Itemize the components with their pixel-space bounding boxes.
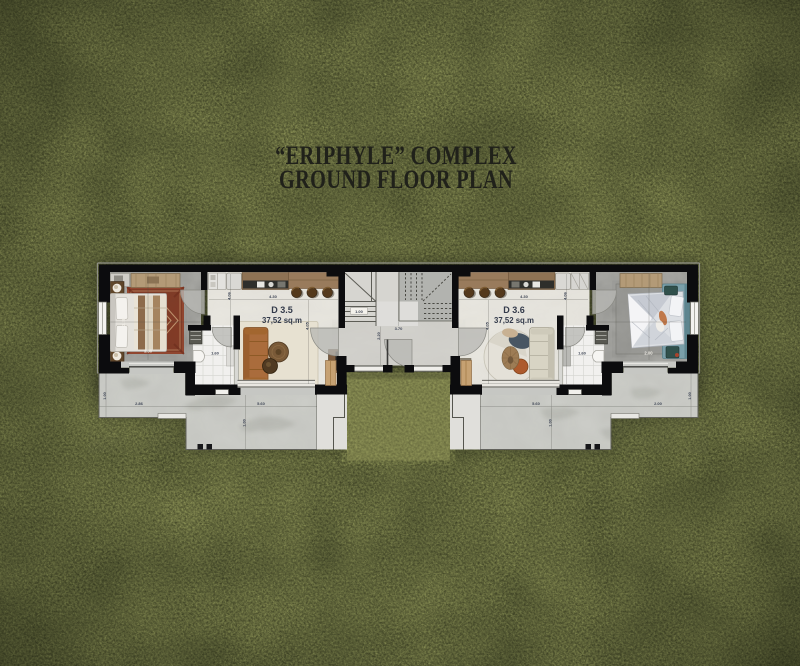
svg-text:GROUND FLOOR PLAN: GROUND FLOOR PLAN <box>279 166 513 195</box>
svg-text:D 3.6: D 3.6 <box>503 305 525 315</box>
svg-text:4.05: 4.05 <box>485 321 490 330</box>
svg-text:1.00: 1.00 <box>549 419 553 426</box>
svg-text:4.05: 4.05 <box>305 321 310 330</box>
svg-text:4.30: 4.30 <box>269 294 278 299</box>
svg-text:2.86: 2.86 <box>135 401 144 406</box>
svg-text:1.60: 1.60 <box>578 350 587 355</box>
svg-text:D 3.5: D 3.5 <box>271 305 293 315</box>
svg-text:37,52 sq.m: 37,52 sq.m <box>262 316 302 325</box>
svg-text:5.60: 5.60 <box>532 401 541 406</box>
svg-text:37,52 sq.m: 37,52 sq.m <box>494 316 534 325</box>
svg-text:3.70: 3.70 <box>395 326 404 331</box>
svg-text:4.06: 4.06 <box>227 291 232 300</box>
svg-text:4.30: 4.30 <box>520 294 529 299</box>
svg-text:1.00: 1.00 <box>355 309 364 314</box>
svg-text:2.00: 2.00 <box>654 401 663 406</box>
svg-text:2.20: 2.20 <box>377 332 381 339</box>
svg-text:1.00: 1.00 <box>243 419 247 426</box>
svg-text:5.60: 5.60 <box>257 401 266 406</box>
svg-text:3.26: 3.26 <box>121 317 126 326</box>
svg-text:4.06: 4.06 <box>563 291 568 300</box>
svg-text:1.00: 1.00 <box>103 392 107 399</box>
svg-text:1.00: 1.00 <box>688 392 692 399</box>
svg-text:1.60: 1.60 <box>211 350 220 355</box>
svg-text:3.80: 3.80 <box>144 349 153 354</box>
